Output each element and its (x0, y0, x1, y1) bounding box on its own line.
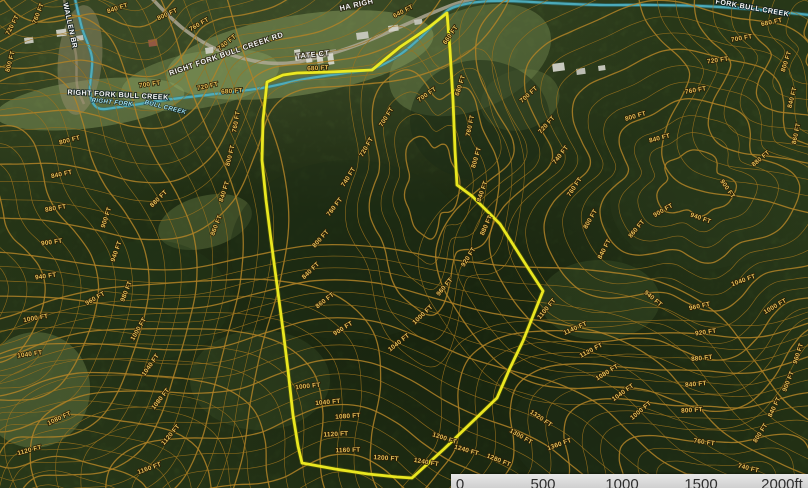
forest-shade (190, 330, 330, 430)
map-view[interactable]: 720 FT760 FT800 FT840 FT800 FT760 FT740 … (0, 0, 808, 488)
contour-elevation-label: 1160 FT (335, 447, 360, 455)
scale-bar-tick: 2000ft (761, 476, 803, 488)
building (576, 68, 586, 75)
scale-bar-tick: 500 (530, 476, 555, 488)
scale-bar-tick: 1500 (684, 476, 717, 488)
scale-bar-tick: 1000 (605, 476, 638, 488)
contour-elevation-label: 1120 FT (323, 430, 348, 438)
scale-bar: 0500100015002000ft (451, 474, 808, 488)
contour-elevation-label: 800 FT (681, 406, 703, 414)
contour-elevation-label: 680 FT (307, 64, 329, 72)
building (598, 65, 606, 71)
scale-bar-tick: 0 (456, 476, 464, 488)
building (552, 62, 565, 72)
contour-elevation-label: 680 FT (221, 87, 243, 95)
terrain-layer: 720 FT760 FT800 FT840 FT800 FT760 FT740 … (0, 0, 808, 488)
